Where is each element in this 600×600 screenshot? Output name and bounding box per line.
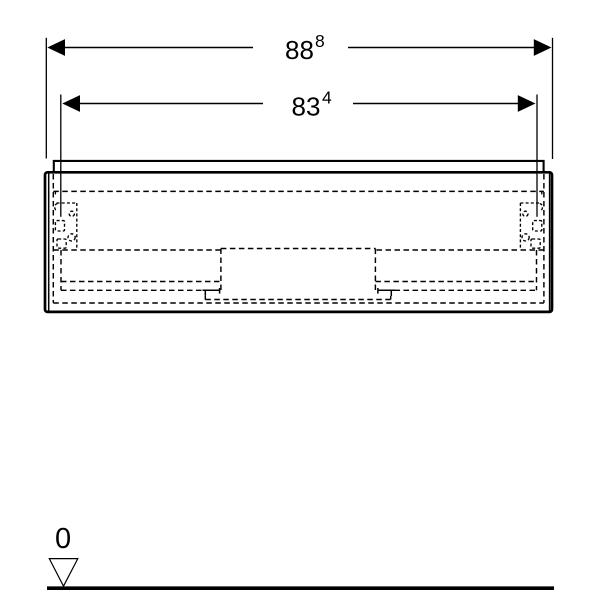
svg-text:8: 8 [315,31,325,51]
svg-text:83: 83 [292,92,321,122]
svg-text:0: 0 [55,523,71,555]
svg-text:88: 88 [285,35,314,65]
svg-text:4: 4 [322,88,332,108]
